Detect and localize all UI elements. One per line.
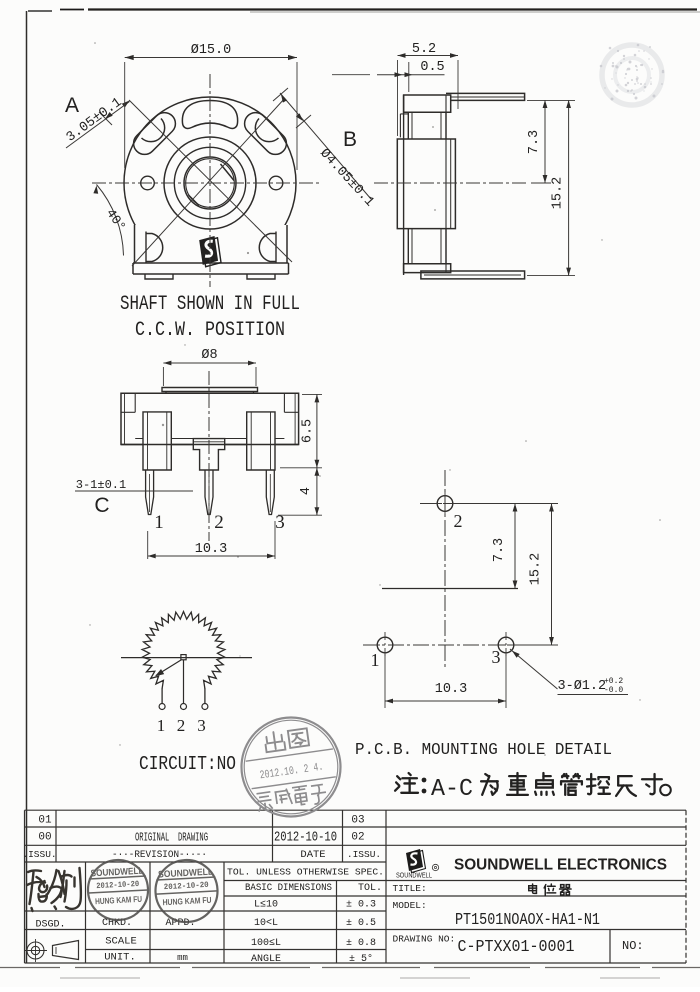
svg-text:2: 2 — [177, 716, 186, 735]
svg-text:SOUNDWELL ELECTRONICS: SOUNDWELL ELECTRONICS — [454, 857, 667, 874]
svg-text:1: 1 — [154, 512, 164, 533]
svg-text:2012-10-10: 2012-10-10 — [274, 830, 337, 846]
svg-text:BASIC DIMENSIONS: BASIC DIMENSIONS — [245, 882, 332, 894]
svg-text:7.3: 7.3 — [492, 538, 507, 562]
svg-text:03: 03 — [351, 815, 364, 827]
svg-text:TITLE:: TITLE: — [393, 883, 427, 894]
svg-text:PT1501NOAOX-HA1-N1: PT1501NOAOX-HA1-N1 — [455, 911, 600, 930]
svg-text:MODEL:: MODEL: — [393, 900, 427, 911]
svg-text:± 0.5: ± 0.5 — [346, 918, 376, 929]
svg-text:L≤10: L≤10 — [254, 900, 278, 911]
svg-text:1: 1 — [371, 650, 380, 670]
svg-text:SCALE: SCALE — [105, 936, 137, 948]
svg-text:B: B — [343, 128, 357, 151]
svg-text:Ø15.0: Ø15.0 — [191, 43, 232, 58]
svg-text:.ISSU.: .ISSU. — [22, 849, 56, 860]
svg-text:P.C.B. MOUNTING HOLE DETAIL: P.C.B. MOUNTING HOLE DETAIL — [355, 741, 612, 760]
svg-text:DSGD.: DSGD. — [35, 920, 65, 931]
svg-text:6.5: 6.5 — [301, 419, 316, 443]
svg-text:5.2: 5.2 — [412, 42, 436, 57]
svg-text:C: C — [94, 494, 109, 517]
svg-text:4: 4 — [299, 487, 314, 495]
svg-text:-··-REVISION-··-·: -··-REVISION-··-· — [112, 850, 207, 861]
svg-text:-0.0: -0.0 — [604, 686, 623, 695]
svg-text:0.5: 0.5 — [420, 60, 444, 75]
svg-text:C.C.W. POSITION: C.C.W. POSITION — [135, 319, 285, 342]
svg-text:UNIT.: UNIT. — [104, 952, 136, 964]
svg-text:DATE: DATE — [300, 849, 325, 861]
svg-text:± 0.8: ± 0.8 — [346, 938, 376, 949]
svg-text:10.3: 10.3 — [435, 682, 467, 697]
svg-text:SHAFT SHOWN IN FULL: SHAFT SHOWN IN FULL — [120, 293, 300, 316]
svg-text:3: 3 — [275, 512, 285, 533]
svg-text:7.3: 7.3 — [527, 130, 542, 154]
svg-text:01: 01 — [38, 815, 52, 827]
svg-text:DRAWING NO:: DRAWING NO: — [393, 934, 456, 945]
svg-text:A-C: A-C — [431, 776, 473, 803]
svg-text:mm: mm — [177, 953, 188, 963]
svg-text:TOL.: TOL. — [358, 883, 382, 894]
svg-text:APPD.: APPD. — [165, 918, 195, 929]
svg-text:3-1±0.1: 3-1±0.1 — [76, 478, 126, 492]
svg-text:± 0.3: ± 0.3 — [346, 900, 376, 911]
svg-text:Ø8: Ø8 — [201, 348, 217, 363]
svg-text:00: 00 — [38, 832, 51, 844]
svg-text:3: 3 — [492, 647, 501, 667]
svg-text:SOUNDWELL: SOUNDWELL — [396, 873, 432, 880]
svg-text:± 5°: ± 5° — [349, 953, 373, 965]
svg-text:15.2: 15.2 — [529, 553, 544, 585]
svg-text:3: 3 — [197, 716, 206, 735]
svg-text:TOL. UNLESS OTHERWISE SPEC.: TOL. UNLESS OTHERWISE SPEC. — [227, 867, 384, 878]
svg-text:2: 2 — [214, 512, 224, 533]
svg-text:100≤L: 100≤L — [251, 938, 281, 949]
svg-text:3-Ø1.2: 3-Ø1.2 — [558, 679, 607, 694]
svg-text:C-PTXX01-0001: C-PTXX01-0001 — [458, 937, 575, 956]
svg-text:A: A — [65, 94, 79, 117]
svg-text:.ISSU.: .ISSU. — [347, 849, 381, 860]
svg-text:NO:: NO: — [622, 939, 644, 953]
svg-text:02: 02 — [351, 832, 364, 844]
svg-text:10.3: 10.3 — [195, 542, 227, 557]
svg-text:+0.2: +0.2 — [604, 677, 623, 686]
svg-text:2: 2 — [454, 511, 463, 531]
svg-text:CIRCUIT:NO: CIRCUIT:NO — [139, 753, 236, 775]
svg-text:ANGLE: ANGLE — [251, 954, 281, 965]
svg-text:15.2: 15.2 — [551, 177, 566, 209]
svg-text:10<L: 10<L — [254, 918, 278, 929]
svg-text:1: 1 — [157, 716, 166, 735]
svg-text:ORIGINAL DRAWING: ORIGINAL DRAWING — [135, 831, 208, 845]
